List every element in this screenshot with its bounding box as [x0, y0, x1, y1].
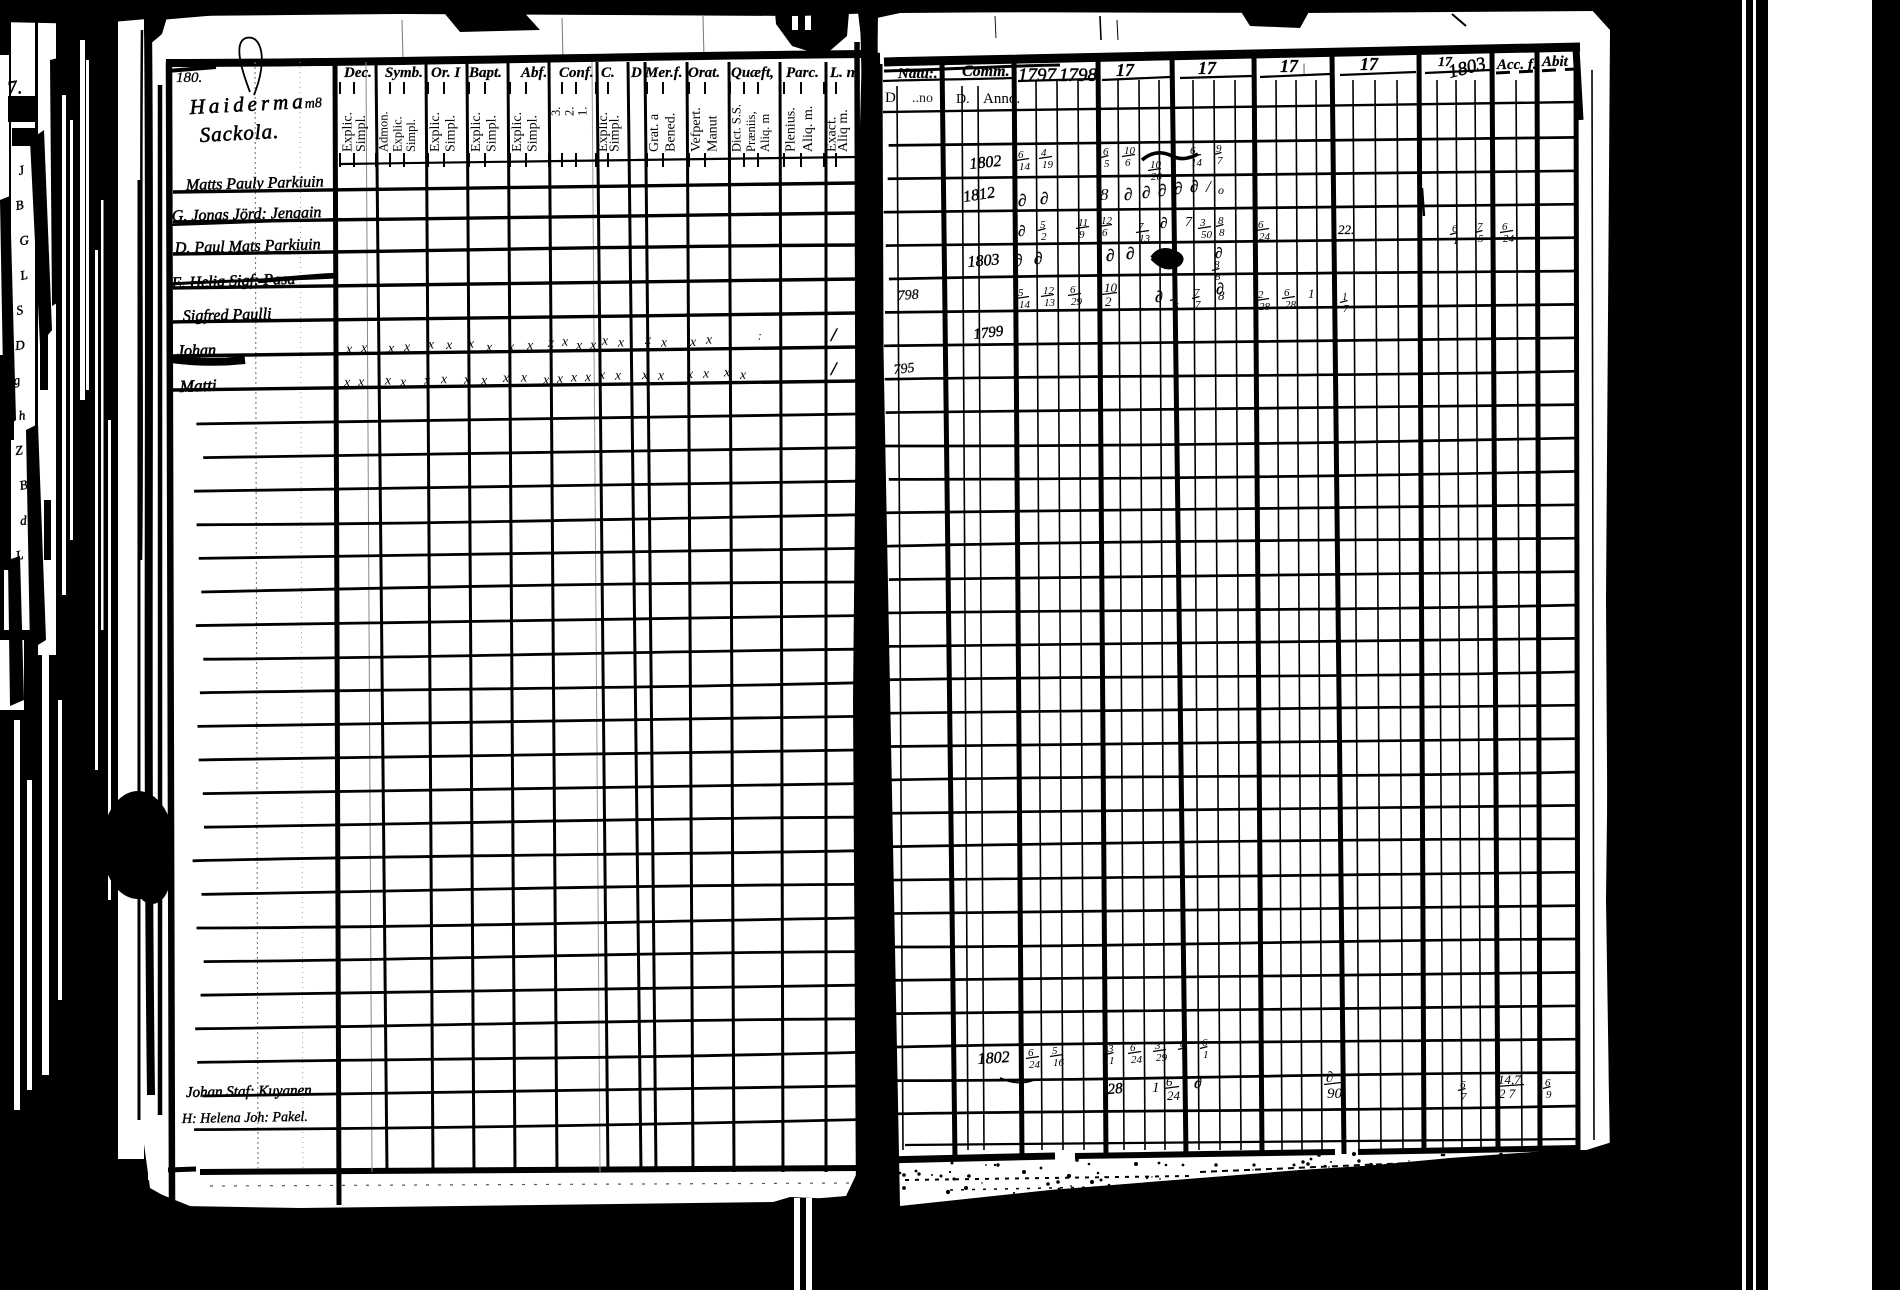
svg-text:7: 7 [1461, 1091, 1467, 1103]
svg-text:Explic.: Explic. [469, 112, 484, 152]
svg-text:1802: 1802 [977, 1049, 1010, 1068]
svg-text:Parc.: Parc. [786, 65, 819, 81]
svg-text:∂: ∂ [1216, 281, 1224, 298]
svg-text:Comm.: Comm. [962, 63, 1010, 80]
svg-text:Conf.: Conf. [559, 65, 594, 81]
svg-text:x: x [723, 365, 731, 380]
svg-text:x: x [617, 335, 625, 350]
svg-text:14: 14 [1019, 299, 1031, 311]
svg-text:∂: ∂ [1106, 246, 1114, 265]
svg-text:Matti: Matti [178, 376, 217, 396]
svg-text:17: 17 [1198, 58, 1217, 78]
svg-text:29: 29 [1071, 296, 1083, 308]
svg-text:x: x [644, 333, 652, 348]
svg-text:m8: m8 [304, 96, 322, 112]
svg-text:28: 28 [1259, 301, 1271, 313]
svg-text:2 7: 2 7 [1499, 1086, 1516, 1101]
svg-text:Simpl.: Simpl. [526, 115, 541, 152]
svg-text:17: 17 [1116, 60, 1135, 80]
svg-text:x: x [520, 370, 528, 385]
svg-text:24: 24 [1029, 1059, 1041, 1071]
svg-text:D.: D. [956, 92, 970, 107]
svg-text:Abit: Abit [1541, 54, 1569, 70]
svg-text:90: 90 [1327, 1086, 1343, 1102]
svg-text:7: 7 [1195, 299, 1201, 311]
svg-text:3.: 3. [549, 107, 563, 116]
svg-text:x: x [399, 375, 407, 390]
svg-text:Dec.: Dec. [343, 65, 372, 81]
svg-text:50: 50 [1201, 229, 1213, 241]
svg-text:x: x [657, 369, 665, 384]
svg-text:x: x [467, 337, 475, 352]
svg-text:x: x [485, 340, 493, 355]
svg-text:1: 1 [1308, 286, 1315, 301]
svg-text:13: 13 [1044, 297, 1056, 309]
svg-text:19: 19 [1042, 159, 1054, 171]
svg-text:Or. I: Or. I [431, 65, 461, 81]
svg-text:6: 6 [1166, 1074, 1173, 1089]
svg-text:x: x [507, 340, 515, 355]
svg-text:12: 12 [57, 76, 76, 96]
svg-text:Orat.: Orat. [688, 65, 720, 81]
svg-text:x: x [547, 336, 555, 351]
svg-text::: : [758, 329, 762, 343]
svg-text:Matts Pauly Parkiuin: Matts Pauly Parkiuin [185, 173, 324, 194]
svg-text:Grat. a: Grat. a [647, 113, 662, 152]
svg-text:14: 14 [1191, 157, 1203, 169]
svg-text:x: x [440, 372, 448, 387]
svg-text:29: 29 [1156, 1052, 1168, 1064]
svg-text:5: 5 [1478, 233, 1484, 245]
svg-text:x: x [589, 338, 597, 353]
svg-text:6: 6 [1125, 157, 1131, 169]
svg-text:x: x [689, 335, 697, 350]
svg-text:∂: ∂ [1018, 191, 1026, 210]
svg-text:Aliq. m.: Aliq. m. [801, 106, 816, 152]
svg-text:Explic.: Explic. [510, 112, 525, 152]
svg-text:Simpl.: Simpl. [404, 119, 418, 152]
svg-text:8: 8 [1219, 227, 1225, 239]
svg-text:|: | [1302, 60, 1306, 75]
svg-text:8: 8 [1100, 185, 1109, 204]
svg-text:∂: ∂ [1040, 189, 1048, 208]
svg-text:Vefpert.: Vefpert. [689, 107, 704, 152]
svg-text:1802: 1802 [969, 153, 1003, 173]
svg-text:x: x [502, 371, 510, 386]
svg-text:795: 795 [893, 361, 915, 378]
svg-text:∂: ∂ [1014, 251, 1022, 270]
svg-text:Plenius.: Plenius. [784, 107, 799, 152]
svg-text:u,: u, [15, 687, 28, 704]
svg-text:∂: ∂ [1174, 179, 1182, 198]
svg-text:1: 1 [1453, 235, 1459, 247]
svg-text:Simpl.: Simpl. [354, 115, 369, 152]
svg-text:x: x [445, 338, 453, 353]
svg-text:∂: ∂ [1160, 216, 1167, 232]
svg-text:Manut: Manut [705, 115, 720, 152]
svg-text:Natu:.: Natu:. [897, 66, 938, 82]
svg-text:2: 2 [1041, 231, 1047, 243]
svg-text:x: x [345, 342, 353, 357]
svg-text:Præniis,: Præniis, [744, 111, 758, 152]
svg-text:..no: ..no [912, 91, 933, 106]
svg-text:Explic.: Explic. [340, 112, 355, 152]
svg-text:x: x [705, 333, 713, 348]
svg-text:Mer.f.: Mer.f. [644, 65, 683, 81]
svg-text:9: 9 [1546, 1089, 1552, 1101]
svg-text:9: 9 [1079, 229, 1085, 241]
svg-text:∂: ∂ [1034, 249, 1042, 268]
svg-text:1: 1 [1203, 1049, 1209, 1061]
svg-text:Admon.: Admon. [376, 111, 390, 152]
svg-text:28: 28 [1107, 1081, 1124, 1098]
svg-text:Bapt.: Bapt. [468, 65, 502, 81]
svg-text:Johan Staf: Kuyanen: Johan Staf: Kuyanen [186, 1083, 312, 1101]
svg-text:24: 24 [1503, 233, 1515, 245]
svg-text:Explic.: Explic. [390, 116, 404, 152]
svg-text:L. n: L. n [829, 65, 855, 81]
svg-text:x: x [660, 336, 668, 351]
svg-text:x: x [423, 373, 431, 388]
svg-text:1: 1 [1152, 1080, 1160, 1096]
svg-text:x: x [601, 334, 609, 349]
svg-text:x: x [542, 373, 550, 388]
svg-text:x: x [384, 373, 392, 388]
svg-text:x: x [427, 337, 435, 352]
svg-text:Simpl.: Simpl. [444, 115, 459, 152]
svg-text:x: x [570, 370, 578, 385]
svg-text:6: 6 [1173, 301, 1179, 313]
svg-text:∂: ∂ [1190, 177, 1198, 196]
svg-text:798: 798 [897, 288, 919, 304]
svg-text:Bened.: Bened. [663, 113, 678, 152]
svg-text:x: x [739, 368, 747, 383]
svg-text:x: x [614, 368, 622, 383]
svg-text:Quæft,: Quæft, [731, 65, 774, 81]
svg-text:7: 7 [1217, 155, 1223, 167]
svg-text:2.: 2. [562, 107, 576, 116]
svg-text:7: 7 [1343, 303, 1349, 315]
svg-text:∂: ∂ [1018, 224, 1025, 240]
svg-text:x: x [357, 375, 365, 390]
svg-text:x: x [387, 341, 395, 356]
svg-text:Acc. f.: Acc. f. [1496, 57, 1537, 73]
svg-text:24: 24 [1259, 231, 1271, 243]
svg-text:Aliq. m: Aliq. m [758, 114, 772, 152]
svg-text:o: o [1218, 183, 1224, 197]
svg-text:x: x [526, 338, 534, 353]
svg-text:x: x [556, 372, 564, 387]
svg-text:Dict. S.S.: Dict. S.S. [730, 104, 744, 152]
svg-text:24: 24 [1131, 1054, 1143, 1066]
svg-text:x: x [480, 373, 488, 388]
svg-text:∂: ∂ [1194, 1075, 1202, 1092]
svg-text:x: x [360, 341, 368, 356]
svg-text:x: x [686, 367, 694, 382]
svg-text:1: 1 [1109, 1055, 1115, 1067]
svg-text:7: 7 [1185, 215, 1193, 230]
svg-text:5: 5 [1104, 158, 1110, 170]
svg-text:x: x [561, 335, 569, 350]
svg-text:x: x [598, 368, 606, 383]
svg-text:C.: C. [601, 65, 615, 81]
svg-text:22.: 22. [1338, 222, 1354, 237]
svg-text:D: D [885, 90, 896, 106]
svg-text:Simpl.: Simpl. [485, 115, 500, 152]
svg-text:Aliq m.: Aliq m. [836, 109, 851, 152]
svg-text:1803: 1803 [967, 251, 1000, 271]
svg-text:2: 2 [1105, 294, 1112, 309]
svg-text:6: 6 [1102, 227, 1108, 239]
svg-text:∂: ∂ [1124, 185, 1132, 204]
svg-text:Symb.: Symb. [385, 65, 423, 81]
svg-text:x: x [702, 367, 710, 382]
svg-text:Explic.: Explic. [428, 112, 443, 152]
svg-text:x: x [584, 370, 592, 385]
svg-text:Sackola.: Sackola. [199, 119, 280, 147]
svg-text:x: x [575, 338, 583, 353]
svg-text:13: 13 [1139, 233, 1151, 245]
svg-text:x: x [641, 368, 649, 383]
svg-text:1798: 1798 [1059, 65, 1098, 86]
svg-text:17: 17 [1280, 56, 1299, 76]
svg-text:Anno.: Anno. [983, 91, 1020, 107]
svg-text:17: 17 [1360, 54, 1379, 74]
svg-text:x: x [463, 373, 471, 388]
svg-text:28: 28 [1285, 299, 1297, 311]
svg-text:Simpl.: Simpl. [608, 115, 623, 152]
svg-text:x: x [403, 340, 411, 355]
svg-text:1: 1 [1181, 1050, 1187, 1062]
svg-text:H: Helena Joh: Pakel.: H: Helena Joh: Pakel. [181, 1110, 308, 1127]
svg-text:Sigfred Paulli: Sigfred Paulli [183, 306, 272, 325]
svg-text:∂: ∂ [1158, 181, 1166, 200]
svg-text:16: 16 [1053, 1057, 1065, 1069]
svg-text:1797: 1797 [1018, 65, 1058, 86]
svg-text:1.: 1. [576, 107, 590, 116]
svg-text:∂: ∂ [1126, 244, 1134, 263]
svg-text:∂: ∂ [1142, 183, 1150, 202]
svg-text:D: D [630, 65, 642, 81]
svg-text:x: x [343, 375, 351, 390]
svg-text:Abf.: Abf. [520, 65, 547, 81]
svg-text:180.: 180. [176, 70, 202, 86]
svg-text:14: 14 [1019, 161, 1031, 173]
svg-text:∂: ∂ [1155, 289, 1163, 306]
svg-text:24: 24 [1167, 1088, 1181, 1103]
